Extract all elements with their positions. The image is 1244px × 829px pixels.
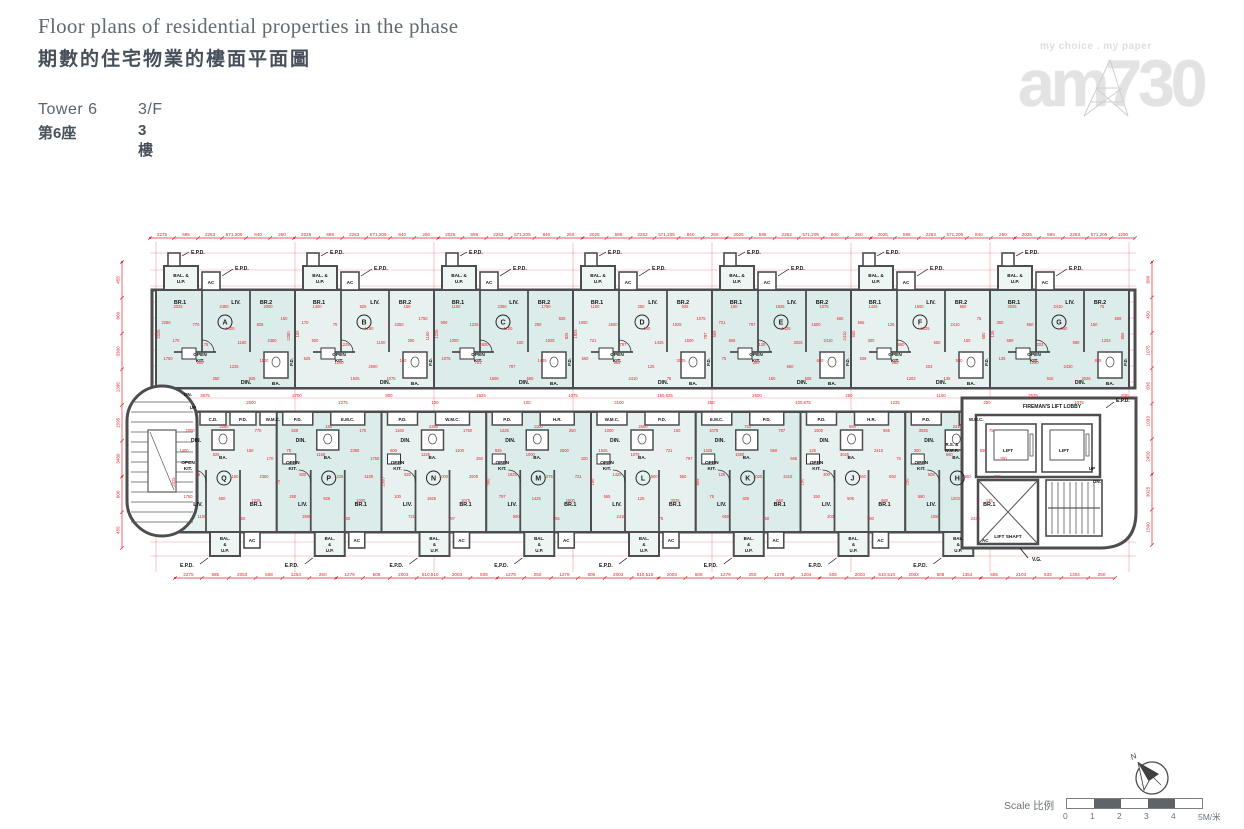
svg-text:LIV.: LIV.	[403, 502, 413, 508]
svg-text:770: 770	[193, 322, 201, 327]
svg-text:825: 825	[291, 428, 299, 433]
svg-text:170: 170	[359, 428, 367, 433]
svg-text:U.P.: U.P.	[745, 548, 753, 553]
svg-text:3025: 3025	[793, 340, 803, 345]
svg-text:OPEN: OPEN	[810, 460, 824, 466]
svg-text:3100: 3100	[614, 400, 624, 405]
svg-text:1000: 1000	[439, 474, 449, 479]
svg-text:1160: 1160	[230, 474, 240, 479]
svg-text:E.P.D.: E.P.D.	[886, 250, 900, 256]
svg-text:925: 925	[304, 356, 312, 361]
svg-text:585: 585	[470, 232, 478, 237]
svg-text:1425: 1425	[654, 340, 664, 345]
svg-text:565: 565	[790, 456, 798, 461]
svg-text:1425: 1425	[612, 472, 622, 477]
svg-text:1160: 1160	[425, 331, 430, 341]
svg-text:797: 797	[509, 364, 517, 369]
svg-text:P.D.: P.D.	[428, 358, 433, 366]
svg-text:600: 600	[390, 448, 398, 453]
svg-text:2003: 2003	[613, 572, 624, 577]
svg-text:E.P.D.: E.P.D.	[747, 250, 761, 256]
svg-text:250: 250	[749, 572, 757, 577]
svg-text:LIV.: LIV.	[509, 300, 519, 306]
svg-text:300: 300	[823, 472, 831, 477]
svg-text:E.P.D.: E.P.D.	[285, 563, 299, 569]
dimension-chain: 22755852253571,20584025020255852253571,2…	[148, 232, 1137, 240]
svg-text:510,510: 510,510	[637, 572, 654, 577]
svg-text:100: 100	[400, 358, 408, 363]
svg-text:1279: 1279	[720, 572, 731, 577]
svg-text:565: 565	[729, 338, 737, 343]
svg-text:KIT.: KIT.	[393, 466, 402, 472]
svg-text:2600: 2600	[469, 474, 479, 479]
svg-text:2600: 2600	[638, 424, 648, 429]
svg-text:2025: 2025	[1081, 376, 1091, 381]
svg-text:1395: 1395	[116, 382, 121, 393]
svg-text:U.P.: U.P.	[221, 548, 229, 553]
svg-text:BA.: BA.	[1106, 381, 1114, 387]
svg-text:100: 100	[431, 400, 439, 405]
svg-text:C.D.: C.D.	[209, 417, 218, 422]
svg-text:585: 585	[182, 232, 190, 237]
svg-text:AC: AC	[354, 538, 361, 543]
svg-text:OPEN: OPEN	[181, 460, 195, 466]
svg-text:1225: 1225	[469, 322, 479, 327]
svg-text:650: 650	[980, 448, 988, 453]
svg-text:580: 580	[956, 358, 964, 363]
svg-text:797: 797	[749, 322, 757, 327]
svg-text:2350: 2350	[497, 304, 507, 309]
svg-text:560: 560	[582, 356, 590, 361]
svg-text:100: 100	[394, 494, 402, 499]
svg-text:U.P.: U.P.	[954, 548, 962, 553]
svg-text:508: 508	[265, 572, 273, 577]
svg-text:100: 100	[674, 428, 682, 433]
svg-text:OPEN: OPEN	[495, 460, 509, 466]
svg-text:300: 300	[997, 320, 1005, 325]
svg-text:P.D.: P.D.	[289, 358, 294, 366]
svg-text:1750: 1750	[163, 356, 173, 361]
svg-text:75: 75	[977, 316, 982, 321]
svg-text:1075: 1075	[544, 474, 554, 479]
svg-text:100,675: 100,675	[795, 400, 811, 405]
svg-text:135: 135	[944, 376, 952, 381]
svg-text:P.D.: P.D.	[567, 358, 572, 366]
svg-text:1254: 1254	[291, 572, 302, 577]
svg-text:2003: 2003	[452, 572, 463, 577]
svg-text:571,205: 571,205	[226, 232, 243, 237]
svg-text:797: 797	[499, 494, 507, 499]
svg-text:250: 250	[408, 338, 416, 343]
svg-text:1500: 1500	[914, 304, 924, 309]
svg-text:2410: 2410	[616, 514, 626, 519]
svg-text:250: 250	[983, 400, 991, 405]
svg-text:2350: 2350	[350, 448, 360, 453]
svg-text:840: 840	[254, 232, 262, 237]
svg-text:2410: 2410	[953, 424, 963, 429]
svg-text:660: 660	[859, 474, 867, 479]
svg-text:560: 560	[680, 474, 688, 479]
svg-text:250: 250	[999, 232, 1007, 237]
svg-text:DIN.: DIN.	[191, 438, 202, 444]
svg-text:E.P.D.: E.P.D.	[1116, 398, 1130, 404]
svg-text:2600: 2600	[479, 342, 489, 347]
svg-text:565: 565	[614, 360, 622, 365]
svg-text:2003: 2003	[908, 572, 919, 577]
svg-text:75: 75	[896, 456, 901, 461]
svg-text:OPEN: OPEN	[749, 352, 763, 358]
svg-text:BAL. &: BAL. &	[173, 273, 189, 278]
svg-text:660: 660	[787, 364, 795, 369]
svg-text:AC: AC	[668, 538, 675, 543]
svg-text:170: 170	[173, 338, 181, 343]
svg-text:680: 680	[881, 498, 889, 503]
svg-text:AC: AC	[877, 538, 884, 543]
svg-text:150: 150	[964, 338, 972, 343]
svg-text:W.M.C.: W.M.C.	[445, 417, 459, 422]
svg-text:925: 925	[249, 376, 257, 381]
svg-text:1290: 1290	[1118, 232, 1129, 237]
svg-text:KIT.: KIT.	[812, 466, 821, 472]
svg-text:LIFT: LIFT	[1059, 448, 1069, 454]
svg-text:2025: 2025	[156, 329, 161, 339]
svg-text:1425: 1425	[781, 326, 791, 331]
svg-text:508: 508	[829, 572, 837, 577]
svg-text:DIN.: DIN.	[401, 438, 412, 444]
svg-text:OPEN: OPEN	[610, 352, 624, 358]
svg-text:OPEN: OPEN	[391, 460, 405, 466]
svg-text:150: 150	[295, 330, 300, 338]
svg-text:U.P.: U.P.	[316, 279, 325, 284]
svg-text:2350: 2350	[394, 322, 404, 327]
svg-text:OPEN: OPEN	[332, 352, 346, 358]
svg-text:585: 585	[1047, 232, 1055, 237]
svg-text:650: 650	[1061, 326, 1069, 331]
svg-text:508: 508	[373, 572, 381, 577]
svg-text:V.G.: V.G.	[1032, 557, 1042, 563]
svg-text:3025: 3025	[670, 498, 680, 503]
svg-text:1425: 1425	[532, 496, 542, 501]
svg-text:797: 797	[778, 428, 786, 433]
svg-text:1075: 1075	[568, 393, 578, 398]
svg-text:1304: 1304	[1070, 572, 1081, 577]
svg-text:250: 250	[476, 456, 484, 461]
svg-text:BA.: BA.	[219, 455, 227, 460]
svg-text:800: 800	[385, 393, 393, 398]
svg-text:2275: 2275	[338, 400, 348, 405]
svg-text:560: 560	[837, 316, 845, 321]
svg-text:75: 75	[1100, 304, 1105, 309]
svg-text:LIV.: LIV.	[370, 300, 380, 306]
svg-text:W.M.C.: W.M.C.	[605, 417, 619, 422]
svg-text:BAL. &: BAL. &	[1007, 273, 1023, 278]
svg-text:1400: 1400	[312, 304, 322, 309]
svg-text:585: 585	[903, 232, 911, 237]
svg-text:AC: AC	[208, 280, 215, 285]
svg-text:1750: 1750	[370, 456, 380, 461]
svg-text:250: 250	[711, 232, 719, 237]
svg-text:75: 75	[276, 479, 281, 484]
svg-text:OPEN: OPEN	[193, 352, 207, 358]
svg-text:2253: 2253	[1070, 232, 1081, 237]
svg-text:1500: 1500	[1146, 522, 1151, 533]
svg-text:LIV.: LIV.	[298, 502, 308, 508]
north-compass-icon: N	[1116, 750, 1186, 805]
svg-text:3025: 3025	[676, 358, 686, 363]
svg-text:508: 508	[860, 356, 868, 361]
svg-text:1075: 1075	[696, 316, 706, 321]
svg-text:250: 250	[289, 494, 297, 499]
svg-text:150: 150	[325, 424, 333, 429]
svg-text:2600: 2600	[752, 393, 762, 398]
svg-text:1925: 1925	[508, 472, 518, 477]
svg-text:DIN.: DIN.	[610, 438, 621, 444]
svg-text:1500: 1500	[814, 428, 824, 433]
svg-text:OPEN: OPEN	[600, 460, 614, 466]
svg-text:2025: 2025	[173, 304, 183, 309]
svg-text:E.P.D.: E.P.D.	[608, 250, 622, 256]
svg-text:3025: 3025	[1007, 304, 1017, 309]
svg-text:150: 150	[813, 494, 821, 499]
svg-text:LIV.: LIV.	[612, 502, 622, 508]
svg-text:1075: 1075	[1146, 345, 1151, 356]
svg-text:2000: 2000	[263, 304, 273, 309]
svg-text:1354: 1354	[962, 572, 973, 577]
svg-text:BA.: BA.	[272, 381, 280, 387]
svg-text:2025: 2025	[445, 232, 456, 237]
svg-text:OPEN: OPEN	[1027, 352, 1041, 358]
svg-text:925: 925	[323, 496, 331, 501]
svg-text:585: 585	[615, 232, 623, 237]
svg-text:OPEN: OPEN	[286, 460, 300, 466]
svg-text:E.P.D.: E.P.D.	[235, 266, 249, 272]
svg-text:1225: 1225	[251, 498, 261, 503]
svg-text:E.P.D.: E.P.D.	[494, 563, 508, 569]
svg-text:1595: 1595	[116, 417, 121, 428]
svg-text:2350: 2350	[259, 474, 269, 479]
svg-text:797: 797	[620, 342, 628, 347]
svg-text:E.P.D.: E.P.D.	[390, 563, 404, 569]
svg-text:300: 300	[753, 360, 761, 365]
svg-text:600: 600	[441, 320, 449, 325]
svg-text:1925: 1925	[672, 322, 682, 327]
svg-text:825: 825	[213, 452, 221, 457]
svg-text:1075: 1075	[709, 428, 719, 433]
dimension-chain: 4558603300139515953480600455	[116, 260, 124, 550]
svg-text:1075: 1075	[1074, 400, 1084, 405]
svg-text:600: 600	[116, 490, 121, 498]
svg-text:2410: 2410	[1053, 304, 1063, 309]
svg-text:925: 925	[564, 332, 569, 340]
svg-text:2000: 2000	[185, 428, 195, 433]
svg-text:560: 560	[513, 514, 521, 519]
svg-text:855: 855	[1120, 332, 1125, 340]
svg-text:H: H	[955, 476, 960, 483]
scale-tick: 4	[1171, 811, 1176, 821]
svg-text:1033: 1033	[1146, 416, 1151, 427]
svg-text:75: 75	[204, 342, 209, 347]
svg-text:2350: 2350	[429, 424, 439, 429]
svg-text:571,205: 571,205	[802, 232, 819, 237]
svg-text:KIT.: KIT.	[707, 466, 716, 472]
svg-text:560: 560	[485, 478, 490, 486]
svg-text:KIT.: KIT.	[917, 466, 926, 472]
svg-text:E.M.C.: E.M.C.	[341, 417, 354, 422]
svg-text:BAL.: BAL.	[220, 536, 230, 541]
svg-text:150: 150	[1000, 456, 1008, 461]
svg-text:N: N	[431, 476, 436, 483]
svg-text:BAL.: BAL.	[429, 536, 439, 541]
svg-text:560: 560	[770, 448, 778, 453]
svg-text:250: 250	[638, 304, 646, 309]
svg-text:170: 170	[302, 320, 310, 325]
svg-text:DIN.: DIN.	[715, 438, 726, 444]
svg-text:925: 925	[495, 448, 503, 453]
svg-text:455: 455	[116, 526, 121, 534]
svg-text:250: 250	[422, 232, 430, 237]
svg-text:W.M.C.: W.M.C.	[969, 417, 983, 422]
svg-text:1225: 1225	[421, 452, 431, 457]
svg-text:100: 100	[517, 340, 525, 345]
svg-text:U.P.: U.P.	[640, 548, 648, 553]
svg-text:LIV.: LIV.	[508, 502, 518, 508]
svg-text:721: 721	[575, 474, 583, 479]
svg-text:721: 721	[719, 320, 727, 325]
svg-text:565: 565	[553, 516, 561, 521]
svg-text:AC: AC	[625, 280, 632, 285]
svg-text:925: 925	[682, 304, 690, 309]
svg-text:DN.: DN.	[184, 392, 192, 397]
svg-text:LIFT: LIFT	[1003, 448, 1013, 454]
svg-text:2600: 2600	[302, 514, 312, 519]
svg-text:E.P.D.: E.P.D.	[180, 563, 194, 569]
svg-text:250: 250	[845, 393, 853, 398]
svg-text:660: 660	[776, 498, 784, 503]
svg-text:860: 860	[116, 311, 121, 319]
svg-text:300: 300	[742, 496, 750, 501]
svg-text:2003: 2003	[398, 572, 409, 577]
svg-text:508: 508	[480, 572, 488, 577]
compass-north-label: N	[1129, 751, 1138, 762]
svg-text:BA.: BA.	[411, 381, 419, 387]
svg-text:825: 825	[257, 322, 265, 327]
svg-text:3675: 3675	[200, 393, 210, 398]
svg-text:AC: AC	[249, 538, 256, 543]
svg-text:840: 840	[398, 232, 406, 237]
svg-text:1225: 1225	[229, 364, 239, 369]
svg-text:1279: 1279	[559, 572, 570, 577]
svg-text:203: 203	[1037, 342, 1045, 347]
svg-text:1075: 1075	[386, 376, 396, 381]
svg-text:U.P.: U.P.	[431, 548, 439, 553]
svg-text:BAL. &: BAL. &	[729, 273, 745, 278]
svg-text:E.P.D.: E.P.D.	[374, 266, 388, 272]
svg-text:150,825: 150,825	[657, 393, 673, 398]
svg-text:AC: AC	[458, 538, 465, 543]
svg-text:75: 75	[659, 516, 664, 521]
svg-text:2003: 2003	[667, 572, 678, 577]
svg-text:721: 721	[744, 424, 752, 429]
svg-text:1279: 1279	[774, 572, 785, 577]
svg-text:680: 680	[981, 332, 986, 340]
svg-text:1279: 1279	[506, 572, 517, 577]
svg-text:660: 660	[898, 342, 906, 347]
svg-text:2003: 2003	[855, 572, 866, 577]
svg-text:DN.: DN.	[1093, 479, 1101, 484]
svg-text:1500: 1500	[566, 498, 576, 503]
svg-text:U.P.: U.P.	[850, 548, 858, 553]
svg-text:BA.: BA.	[550, 381, 558, 387]
svg-text:565: 565	[883, 428, 891, 433]
svg-text:1400: 1400	[225, 326, 235, 331]
svg-text:DIN.: DIN.	[820, 438, 831, 444]
svg-text:1000: 1000	[604, 428, 614, 433]
svg-text:135: 135	[990, 330, 995, 338]
svg-text:2253: 2253	[205, 232, 216, 237]
svg-text:2410: 2410	[783, 474, 793, 479]
svg-text:3025: 3025	[919, 428, 929, 433]
svg-text:125: 125	[638, 496, 646, 501]
svg-text:1160: 1160	[316, 452, 326, 457]
svg-text:250: 250	[569, 428, 577, 433]
svg-text:2350: 2350	[267, 338, 277, 343]
svg-text:2253: 2253	[493, 232, 504, 237]
svg-text:1425: 1425	[537, 358, 547, 363]
svg-text:250: 250	[855, 232, 863, 237]
svg-text:DIN.: DIN.	[505, 438, 516, 444]
svg-text:BAL.: BAL.	[953, 536, 963, 541]
svg-text:LIV.: LIV.	[787, 300, 797, 306]
svg-text:600: 600	[219, 496, 227, 501]
svg-text:LIV.: LIV.	[193, 502, 203, 508]
svg-text:2280: 2280	[161, 320, 171, 325]
svg-text:125: 125	[809, 448, 817, 453]
svg-text:571,205: 571,205	[658, 232, 675, 237]
svg-text:1050: 1050	[1029, 360, 1039, 365]
svg-text:585: 585	[759, 232, 767, 237]
svg-text:BA.: BA.	[689, 381, 697, 387]
svg-text:1100: 1100	[260, 358, 270, 363]
svg-text:1100: 1100	[504, 326, 514, 331]
svg-text:BAL.: BAL.	[534, 536, 544, 541]
svg-text:1750: 1750	[183, 494, 193, 499]
svg-text:2430: 2430	[971, 516, 981, 521]
svg-text:508: 508	[937, 572, 945, 577]
svg-text:571,205: 571,205	[1091, 232, 1108, 237]
svg-text:797: 797	[703, 332, 708, 340]
svg-text:1160: 1160	[452, 304, 462, 309]
svg-text:1075: 1075	[819, 304, 829, 309]
svg-text:170: 170	[267, 456, 275, 461]
svg-text:3025: 3025	[1146, 486, 1151, 497]
svg-text:J: J	[851, 476, 855, 483]
svg-text:75: 75	[333, 322, 338, 327]
svg-text:580: 580	[1073, 340, 1081, 345]
svg-text:KIT.: KIT.	[603, 466, 612, 472]
svg-text:855: 855	[1095, 358, 1103, 363]
svg-text:E.P.D.: E.P.D.	[930, 266, 944, 272]
svg-text:2025: 2025	[733, 232, 744, 237]
svg-text:721: 721	[666, 448, 674, 453]
svg-text:1225: 1225	[890, 400, 900, 405]
svg-text:1925: 1925	[573, 329, 578, 339]
svg-text:2410: 2410	[842, 331, 847, 341]
svg-text:150: 150	[281, 316, 289, 321]
svg-text:3025: 3025	[753, 474, 763, 479]
svg-text:680: 680	[964, 474, 972, 479]
svg-text:BA.: BA.	[967, 381, 975, 387]
svg-text:AC: AC	[773, 538, 780, 543]
